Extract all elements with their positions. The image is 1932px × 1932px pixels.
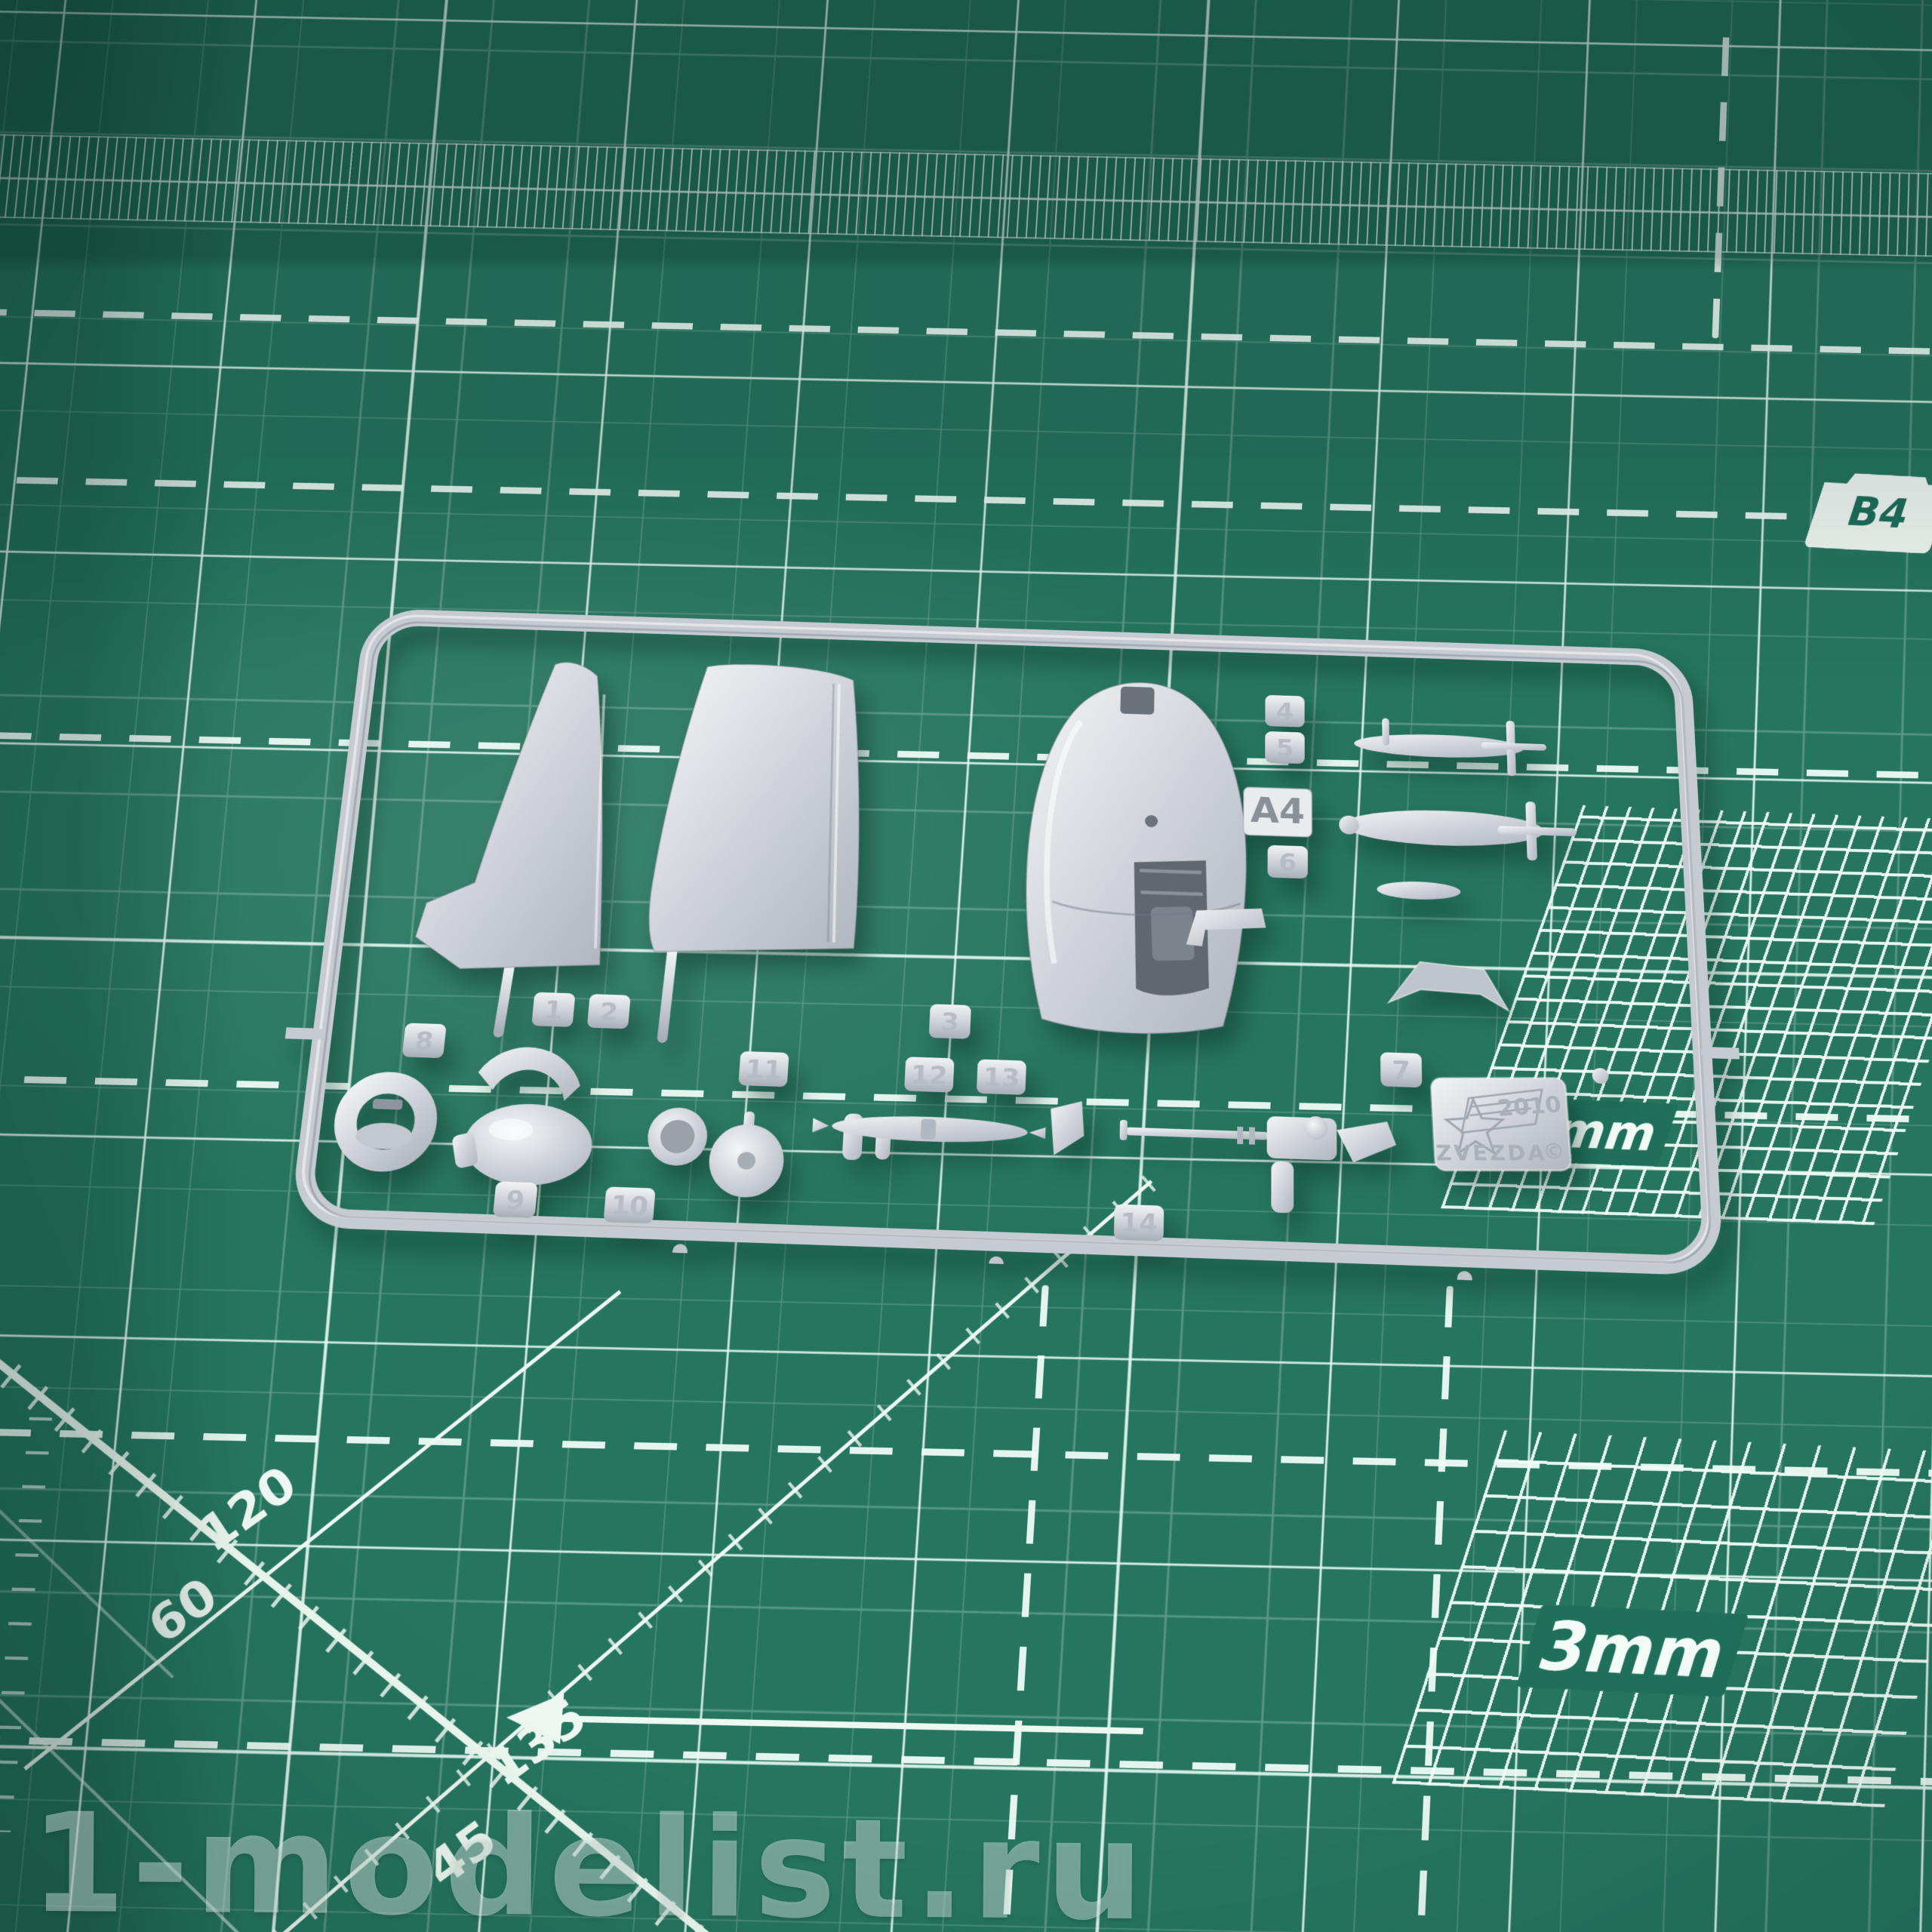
part-tag-14: 14 <box>1114 1204 1164 1241</box>
part-tag-3: 3 <box>929 1004 971 1039</box>
photo-of-sprue-on-cutting-mat: 2mm 3mm B4 5 120 <box>0 0 1932 1932</box>
part-tag-7: 7 <box>1380 1052 1422 1088</box>
svg-text:4: 4 <box>1276 698 1294 726</box>
part-tag-10: 10 <box>603 1186 655 1223</box>
svg-text:2: 2 <box>598 998 620 1028</box>
svg-text:1: 1 <box>543 995 564 1026</box>
brand-plate: 2010 ZVEZDA © <box>1431 1078 1572 1171</box>
windscreen-frame-part <box>1388 961 1509 1011</box>
svg-text:8: 8 <box>414 1026 435 1057</box>
arrow-line <box>556 1718 1143 1731</box>
svg-text:11: 11 <box>744 1054 783 1085</box>
part-tag-5: 5 <box>1265 731 1305 764</box>
part-tag-12: 12 <box>904 1057 954 1092</box>
machine-gun-part <box>1118 1109 1398 1217</box>
left-edge-ticks <box>0 1417 41 1832</box>
bomb-part <box>1339 795 1577 862</box>
part-tag-1: 1 <box>531 992 575 1027</box>
svg-text:7: 7 <box>1392 1056 1411 1086</box>
cowl-cup-part <box>645 1106 709 1166</box>
tailplane-part <box>1049 1100 1084 1156</box>
svg-text:13: 13 <box>983 1063 1020 1094</box>
propeller-hub-part <box>706 1110 786 1198</box>
protractor-label-60: 60 <box>138 1567 227 1655</box>
part-tag-9: 9 <box>493 1181 538 1218</box>
part-tag-6: 6 <box>1268 845 1308 879</box>
svg-text:14: 14 <box>1120 1207 1158 1240</box>
antenna-part <box>1377 880 1460 900</box>
plate-brand: ZVEZDA <box>1435 1140 1548 1165</box>
angle-line-60 <box>25 1280 620 1781</box>
svg-text:9: 9 <box>504 1185 526 1217</box>
sprue-section-tag: A4 <box>1244 787 1312 837</box>
small-round-part <box>1592 1068 1608 1084</box>
watermark-text: 1-modelist.ru <box>29 1783 1150 1932</box>
svg-text:3: 3 <box>940 1008 960 1038</box>
part-tag-2: 2 <box>587 994 631 1029</box>
plate-year: 2010 <box>1496 1091 1563 1121</box>
part-tag-8: 8 <box>402 1023 447 1058</box>
fuselage-half-part <box>1021 679 1247 1037</box>
engine-cowl-part <box>447 1045 601 1188</box>
svg-text:5: 5 <box>1276 734 1294 762</box>
svg-text:10: 10 <box>609 1190 649 1223</box>
sprue-section-label: A4 <box>1251 789 1305 832</box>
part-tag-11: 11 <box>738 1051 789 1087</box>
plate-copyright: © <box>1542 1138 1566 1164</box>
tail-fin-part-1 <box>412 659 626 974</box>
part-tag-4: 4 <box>1265 695 1304 728</box>
sprue-parts: 2010 ZVEZDA © <box>338 654 1614 1227</box>
part-tag-13: 13 <box>977 1059 1026 1094</box>
cowling-ring-part <box>341 1081 430 1162</box>
svg-text:12: 12 <box>910 1060 949 1091</box>
protractor-label-120: 120 <box>189 1455 306 1564</box>
model-kit-sprue: 2010 ZVEZDA © <box>260 596 1753 1290</box>
drop-tank-part <box>1354 716 1547 777</box>
svg-text:6: 6 <box>1278 848 1297 877</box>
